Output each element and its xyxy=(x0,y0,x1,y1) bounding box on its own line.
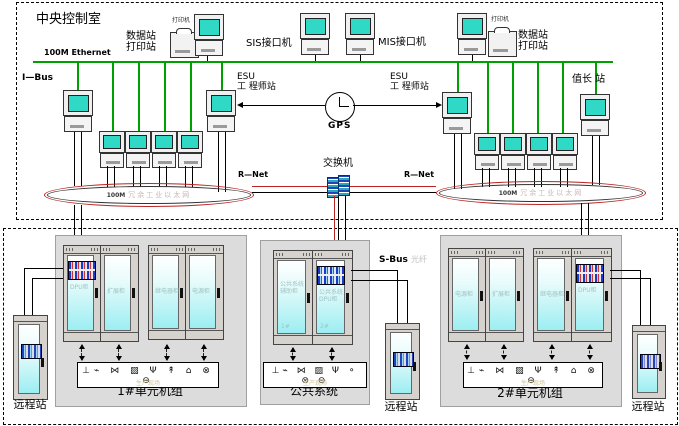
monitor-screen xyxy=(504,137,522,151)
sbus-label: S-Bus 光纤 xyxy=(379,255,427,265)
arrow-left-icon xyxy=(237,102,243,108)
field-label: 生产现场 xyxy=(264,378,366,387)
io-arrow xyxy=(118,345,119,360)
cabinet-handle xyxy=(95,288,98,298)
cabinet-top xyxy=(534,249,572,257)
monitor xyxy=(580,94,610,120)
cabinet-bottom xyxy=(486,332,523,341)
cabinet-label: DPU柜 xyxy=(70,284,89,291)
cabinet-top xyxy=(149,246,186,254)
ethernet-bus-line xyxy=(33,61,613,63)
cabinet-label: 扩展柜 xyxy=(492,291,510,298)
monitor xyxy=(177,131,203,153)
sis-interface-label: SIS接口机 xyxy=(246,38,292,49)
monitor-screen xyxy=(199,19,220,36)
cabinet-bottom xyxy=(149,330,186,339)
monitor xyxy=(474,133,500,155)
cabinet-top xyxy=(101,246,138,254)
unit2-title: 2#单元机组 xyxy=(440,387,620,400)
workstation-operator xyxy=(151,131,177,166)
dpu-module-block xyxy=(68,261,96,280)
remote-link-line xyxy=(610,270,640,271)
io-arrow xyxy=(551,345,552,359)
workstation-operator-far-left xyxy=(63,90,93,132)
cabinet-bottom xyxy=(534,332,572,341)
computer-base xyxy=(301,39,329,55)
rnet-double-line xyxy=(74,132,82,186)
cabinet-bottom xyxy=(64,332,101,341)
monitor-screen xyxy=(447,97,468,114)
sbus-line xyxy=(351,270,397,271)
ethernet-drop-line xyxy=(562,63,564,133)
field-instrument-strip-common: ⊥⌁ ⋈ ▨ Ψ ⚬ ⊗ ⊖ 生产现场 xyxy=(263,362,367,388)
cabinet-bottom xyxy=(313,335,352,344)
cabinet-handle xyxy=(480,291,483,301)
ethernet-drop-line xyxy=(164,63,166,131)
remote-io-module xyxy=(393,352,414,367)
monitor-screen xyxy=(211,95,232,112)
workstation-operator xyxy=(526,133,552,168)
monitor xyxy=(457,13,487,39)
remote-link-line xyxy=(650,278,651,325)
computer-base xyxy=(458,39,486,55)
sbus-fiber-text: 光纤 xyxy=(411,255,427,264)
ethernet-drop-line xyxy=(77,63,79,90)
monitor xyxy=(125,131,151,153)
rnet-ring-right: 100M冗余工业以太网 xyxy=(436,181,646,205)
cabinet-top xyxy=(449,249,486,257)
remote-station-right xyxy=(632,325,666,399)
sbus-line xyxy=(397,270,398,323)
cabinet-bottom xyxy=(449,332,486,341)
ethernet-drop-line xyxy=(221,63,223,90)
field-label: 生产现场 xyxy=(78,378,218,387)
connector-line xyxy=(360,55,361,61)
cabinet-label: 公共系统 DPU柜 xyxy=(319,289,343,303)
monitor-screen xyxy=(181,135,199,149)
ring-right-name: 冗余工业以太网 xyxy=(520,189,583,197)
io-arrow xyxy=(292,348,293,360)
cabinet-panel xyxy=(18,324,40,394)
remote-io-module xyxy=(640,354,661,369)
cabinet-handle xyxy=(132,288,135,298)
dpu-module-block xyxy=(576,264,604,283)
monitor xyxy=(206,90,236,116)
cabinet-handle xyxy=(413,362,416,371)
monitor xyxy=(151,131,177,153)
sbus-text: S-Bus xyxy=(379,255,408,265)
cabinet-number: 1# xyxy=(281,323,290,330)
remote-link-line xyxy=(32,278,63,279)
cabinet-handle xyxy=(517,291,520,301)
cabinet-handle xyxy=(346,293,349,303)
monitor-screen xyxy=(155,135,173,149)
monitor xyxy=(500,133,526,155)
cabinet-unit2-relay: 继电器柜 xyxy=(533,248,573,342)
remote-link-line xyxy=(24,268,25,315)
cabinet-label: 电源柜 xyxy=(455,291,473,298)
cabinet-handle xyxy=(41,358,44,367)
monitor-screen xyxy=(305,18,326,35)
cabinet-unit1-power: 电源柜 xyxy=(185,245,224,340)
monitor xyxy=(300,13,330,39)
workstation-esu-right xyxy=(442,92,472,134)
printer-left-label: 打印机 xyxy=(172,18,190,25)
ethernet-label: 100M Ethernet xyxy=(44,49,111,58)
io-arrow xyxy=(331,348,332,360)
cabinet-handle xyxy=(307,293,310,303)
cabinet-top xyxy=(633,326,665,332)
field-instrument-strip-unit1: ⊥⌁ ⋈ ▨ Ψ ↟ ⌂ ⊗ ⊖ 生产现场 xyxy=(77,362,219,388)
computer-base xyxy=(346,39,374,55)
rnet-ring-left: 100M冗余工业以太网 xyxy=(44,183,254,207)
ethernet-drop-line xyxy=(487,63,489,133)
ring-right-label: 100M冗余工业以太网 xyxy=(499,188,584,198)
rnet-double-line xyxy=(454,134,462,189)
field-label: 生产现场 xyxy=(464,378,602,387)
ethernet-drop-line xyxy=(537,63,539,133)
monitor xyxy=(442,92,472,118)
ethernet-drop-line xyxy=(190,63,192,131)
rnet-double-line xyxy=(218,132,226,192)
cabinet-handle xyxy=(659,362,662,371)
gps-link-line xyxy=(243,105,325,106)
connector-line xyxy=(207,56,208,61)
cabinet-top xyxy=(313,251,352,259)
workstation-operator xyxy=(500,133,526,168)
workstation-shift-leader xyxy=(580,94,610,136)
remote-link-line xyxy=(640,270,641,325)
cabinet-label: 扩展柜 xyxy=(107,288,125,295)
ring-left-name: 冗余工业以太网 xyxy=(128,191,191,199)
gps-link-line xyxy=(353,105,436,106)
workstation-operator xyxy=(125,131,151,166)
cabinet-unit1-relay: 继电器柜 xyxy=(148,245,187,340)
remote-station-middle xyxy=(385,323,420,400)
remote-link-line xyxy=(610,278,650,279)
workstation-operator xyxy=(99,131,125,166)
ring-right-prefix: 100M xyxy=(499,190,518,197)
ethernet-drop-line xyxy=(138,63,140,131)
ring-link-red-line xyxy=(349,186,436,187)
io-arrow xyxy=(589,345,590,359)
cabinet-bottom xyxy=(274,335,313,344)
cabinet-bottom xyxy=(101,332,138,341)
cabinet-top xyxy=(386,324,419,330)
remote-link-line xyxy=(24,268,63,269)
cabinet-handle xyxy=(605,291,608,301)
workstation-data-print-left xyxy=(194,14,224,56)
remote-io-module xyxy=(21,344,42,359)
cabinet-unit2-dpu: DPU柜 xyxy=(571,248,612,342)
computer-base xyxy=(195,40,223,56)
data-print-left-label: 数据站 打印站 xyxy=(126,31,156,53)
esu-right-label: ESU 工 程师站 xyxy=(390,72,429,92)
workstation-mis-interface xyxy=(345,13,375,55)
monitor xyxy=(194,14,224,40)
workstation-operator xyxy=(552,133,578,168)
switch-label: 交换机 xyxy=(323,158,353,169)
ibus-label: I—Bus xyxy=(22,73,53,83)
workstation-data-print-right xyxy=(457,13,487,55)
field-instrument-strip-unit2: ⊥⌁ ⋈ ▨ Ψ ↟ ⌂ ⊗ ⊖ 生产现场 xyxy=(463,362,603,388)
cabinet-top xyxy=(486,249,523,257)
ring-link-red-line xyxy=(252,186,327,187)
network-switch-icon xyxy=(327,175,349,196)
monitor-screen xyxy=(585,99,606,116)
monitor-screen xyxy=(530,137,548,151)
io-arrow xyxy=(203,345,204,360)
cabinet-unit1-ext: 扩展柜 xyxy=(100,245,139,342)
cabinet-handle xyxy=(217,288,220,298)
data-print-right-label: 数据站 打印站 xyxy=(518,30,548,52)
cabinet-unit2-power: 电源柜 xyxy=(448,248,487,342)
cabinet-unit2-ext: 扩展柜 xyxy=(485,248,524,342)
cabinet-bottom xyxy=(572,332,611,341)
computer-base xyxy=(443,118,471,134)
cabinet-common-dpu: 公共系统 DPU柜 2# xyxy=(312,250,353,345)
cabinet-top xyxy=(14,316,47,322)
cabinet-number: 2# xyxy=(320,323,329,330)
monitor-screen xyxy=(462,18,483,35)
ring-left-prefix: 100M xyxy=(107,192,126,199)
remote-station-left-label: 远程站 xyxy=(4,399,56,411)
monitor xyxy=(526,133,552,155)
connector-line xyxy=(315,55,316,61)
cabinet-label: 继电器柜 xyxy=(540,291,564,298)
workstation-operator xyxy=(474,133,500,168)
io-arrow xyxy=(166,345,167,360)
control-room-title: 中央控制室 xyxy=(36,13,101,28)
rnet-left-label: R—Net xyxy=(238,171,268,180)
cabinet-label: 电源柜 xyxy=(192,288,210,295)
monitor-screen xyxy=(556,137,574,151)
cabinet-handle xyxy=(180,288,183,298)
monitor-screen xyxy=(478,137,496,151)
shift-leader-label: 值长 站 xyxy=(572,74,605,85)
cabinet-bottom xyxy=(186,330,223,339)
connector-line xyxy=(472,55,473,61)
monitor-screen xyxy=(68,95,89,112)
workstation-sis-interface xyxy=(300,13,330,55)
ethernet-drop-line xyxy=(457,63,459,92)
ethernet-drop-line xyxy=(112,63,114,131)
sbus-line xyxy=(407,280,408,323)
monitor-screen xyxy=(350,18,371,35)
ethernet-drop-line xyxy=(512,63,514,133)
monitor xyxy=(63,90,93,116)
workstation-esu-left xyxy=(206,90,236,132)
monitor-screen xyxy=(103,135,121,149)
gps-clock-icon xyxy=(325,92,355,122)
dcs-network-diagram: 中央控制室 100M Ethernet I—Bus 打印机 数据站 打印站 SI… xyxy=(0,0,679,426)
remote-station-left xyxy=(13,315,48,400)
cabinet-top xyxy=(274,251,313,259)
remote-link-line xyxy=(32,278,33,315)
cabinet-handle xyxy=(566,291,569,301)
monitor xyxy=(552,133,578,155)
computer-base xyxy=(207,116,235,132)
cabinet-common-aux: 公共系统 辅助柜 1# xyxy=(273,250,314,345)
monitor xyxy=(99,131,125,153)
io-arrow xyxy=(466,345,467,359)
sbus-line xyxy=(351,280,407,281)
esu-left-label: ESU 工 程师站 xyxy=(237,72,276,92)
cabinet-label: DPU柜 xyxy=(578,287,597,294)
workstation-operator xyxy=(177,131,203,166)
monitor-screen xyxy=(129,135,147,149)
computer-base xyxy=(64,116,92,132)
cabinet-label: 继电器柜 xyxy=(155,288,179,295)
cabinet-top xyxy=(64,246,101,254)
rnet-double-line xyxy=(592,136,600,185)
printer-right-label: 打印机 xyxy=(491,17,509,24)
printer-right xyxy=(488,31,517,57)
mis-interface-label: MIS接口机 xyxy=(378,37,426,48)
ring-left-label: 100M冗余工业以太网 xyxy=(107,190,192,200)
cabinet-top xyxy=(572,249,611,257)
monitor xyxy=(345,13,375,39)
computer-base xyxy=(581,120,609,136)
cabinet-top xyxy=(186,246,223,254)
gps-label: GPS xyxy=(328,121,351,131)
io-arrow xyxy=(81,345,82,360)
cabinet-unit1-dpu: DPU柜 xyxy=(63,245,102,342)
dpu-module-block xyxy=(317,266,345,285)
cabinet-label: 公共系统 辅助柜 xyxy=(280,281,304,295)
remote-station-middle-label: 远程站 xyxy=(375,401,427,413)
io-arrow xyxy=(503,345,504,359)
remote-station-right-label: 远程站 xyxy=(622,401,674,413)
rnet-right-label: R—Net xyxy=(404,171,434,180)
